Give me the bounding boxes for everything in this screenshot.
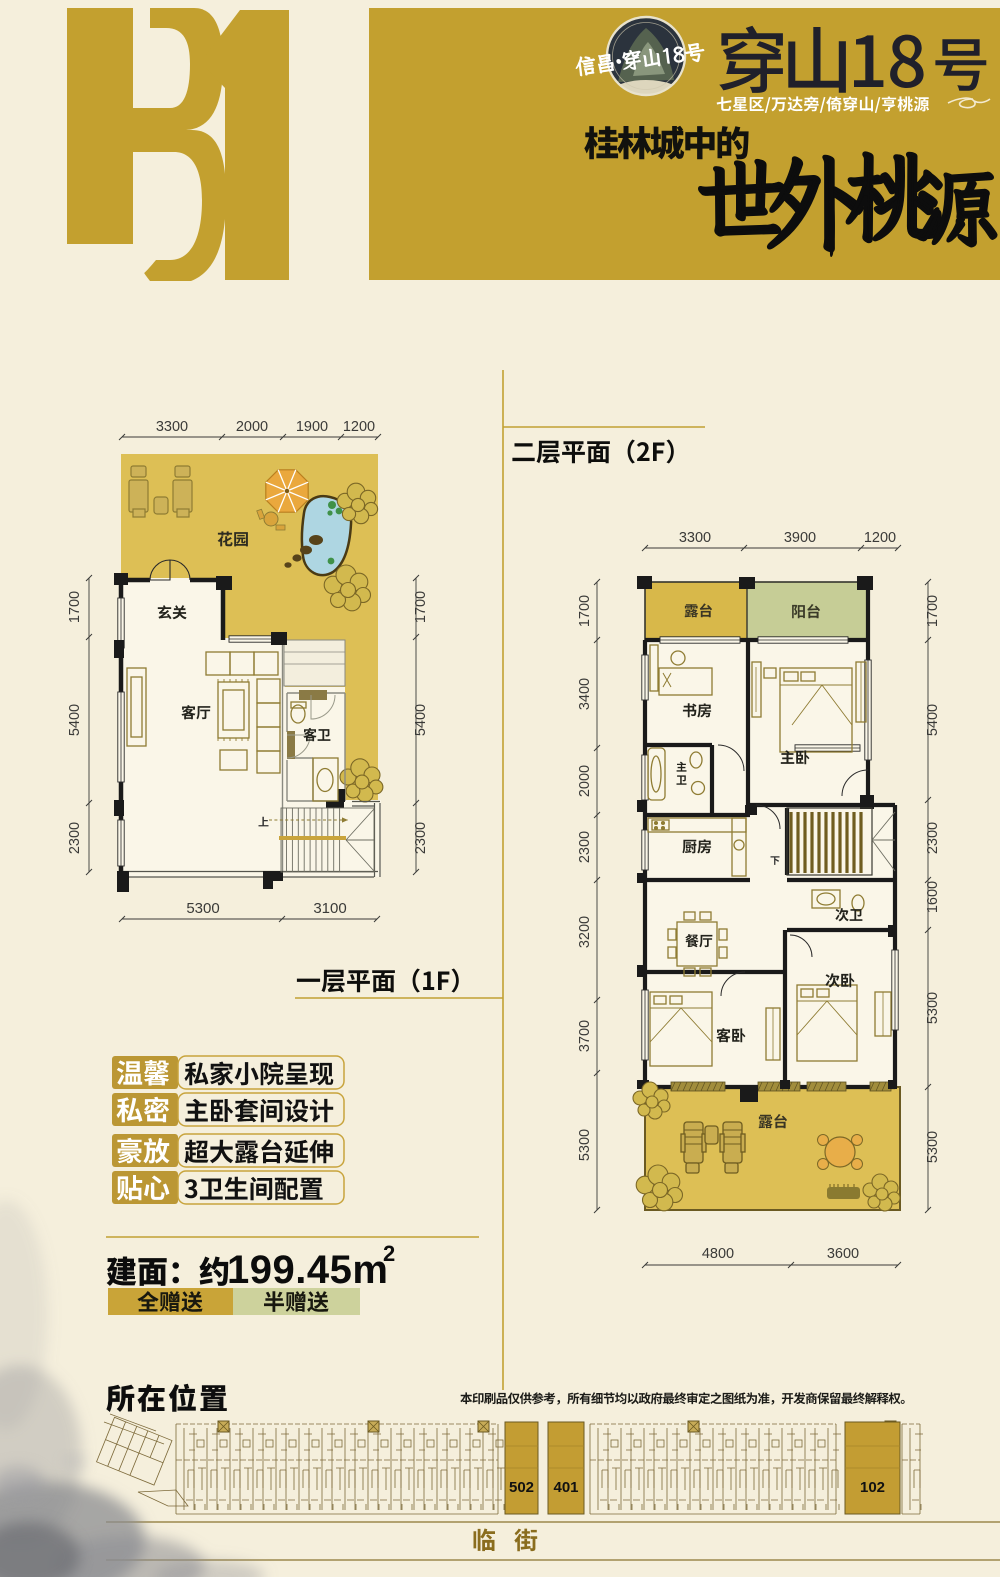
svg-text:1200: 1200	[864, 530, 896, 546]
svg-text:5400: 5400	[67, 704, 83, 736]
svg-text:3700: 3700	[577, 1020, 593, 1052]
svg-text:5300: 5300	[186, 900, 219, 917]
svg-text:2000: 2000	[236, 419, 268, 435]
svg-text:5300: 5300	[925, 992, 941, 1024]
svg-text:502: 502	[509, 1479, 534, 1496]
svg-text:1700: 1700	[413, 591, 429, 623]
svg-text:5300: 5300	[925, 1131, 941, 1163]
svg-text:3300: 3300	[156, 419, 188, 435]
svg-text:5400: 5400	[925, 704, 941, 736]
svg-text:3400: 3400	[577, 678, 593, 710]
svg-text:2300: 2300	[577, 831, 593, 863]
svg-text:1700: 1700	[925, 595, 941, 627]
svg-text:5400: 5400	[413, 704, 429, 736]
svg-text:1700: 1700	[67, 591, 83, 623]
svg-text:1600: 1600	[925, 881, 941, 913]
svg-text:2300: 2300	[925, 822, 941, 854]
svg-text:2: 2	[383, 1241, 395, 1266]
svg-text:1900: 1900	[296, 419, 328, 435]
svg-text:102: 102	[860, 1479, 885, 1496]
svg-text:401: 401	[553, 1479, 578, 1496]
svg-text:3300: 3300	[679, 530, 711, 546]
svg-text:199.45m: 199.45m	[227, 1248, 388, 1292]
svg-text:1200: 1200	[343, 419, 375, 435]
svg-text:1700: 1700	[577, 595, 593, 627]
svg-text:3100: 3100	[313, 900, 346, 917]
svg-text:3200: 3200	[577, 916, 593, 948]
svg-text:3600: 3600	[827, 1246, 859, 1262]
svg-text:2300: 2300	[67, 822, 83, 854]
svg-text:5300: 5300	[577, 1129, 593, 1161]
svg-text:2000: 2000	[577, 765, 593, 797]
svg-text:2300: 2300	[413, 822, 429, 854]
svg-text:4800: 4800	[702, 1246, 734, 1262]
svg-text:3900: 3900	[784, 530, 816, 546]
